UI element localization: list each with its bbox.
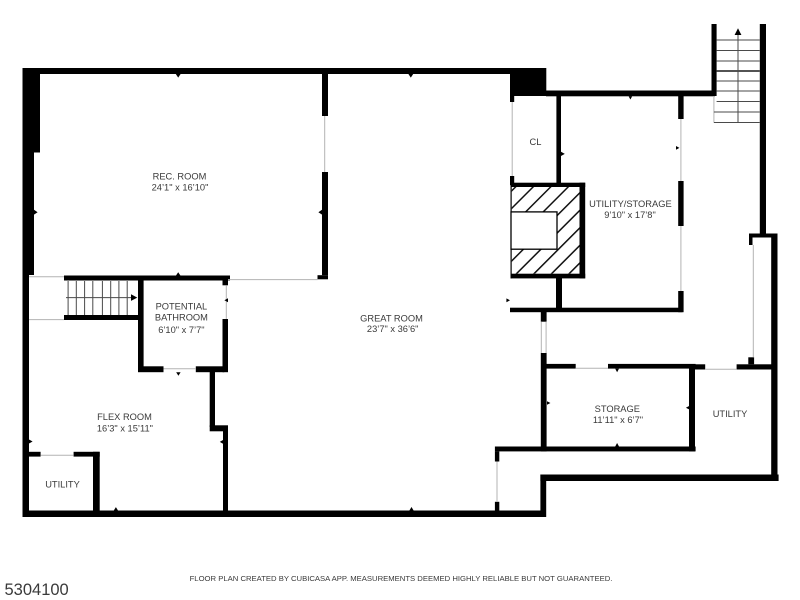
svg-text:STORAGE: STORAGE <box>595 404 640 414</box>
svg-text:16’3" x 15’11": 16’3" x 15’11" <box>97 424 153 434</box>
svg-text:BATHROOM: BATHROOM <box>155 313 208 323</box>
svg-text:9’10" x 17’8": 9’10" x 17’8" <box>604 210 656 220</box>
svg-text:CL: CL <box>530 137 542 147</box>
svg-text:POTENTIAL: POTENTIAL <box>156 302 208 312</box>
svg-text:GREAT ROOM: GREAT ROOM <box>360 314 423 324</box>
svg-text:24’1" x 16’10": 24’1" x 16’10" <box>152 182 209 192</box>
svg-text:UTILITY/STORAGE: UTILITY/STORAGE <box>589 199 671 209</box>
svg-text:5304100: 5304100 <box>5 581 69 599</box>
svg-text:UTILITY: UTILITY <box>45 480 80 490</box>
svg-text:23’7" x 36’6": 23’7" x 36’6" <box>367 324 419 334</box>
svg-text:11’11" x 6’7": 11’11" x 6’7" <box>593 415 643 425</box>
svg-text:6’10" x 7’7": 6’10" x 7’7" <box>158 325 204 335</box>
svg-text:FLOOR PLAN CREATED BY CUBICASA: FLOOR PLAN CREATED BY CUBICASA APP. MEAS… <box>190 574 613 583</box>
svg-text:FLEX ROOM: FLEX ROOM <box>97 412 152 422</box>
svg-text:REC. ROOM: REC. ROOM <box>153 172 207 182</box>
svg-text:UTILITY: UTILITY <box>713 409 748 419</box>
